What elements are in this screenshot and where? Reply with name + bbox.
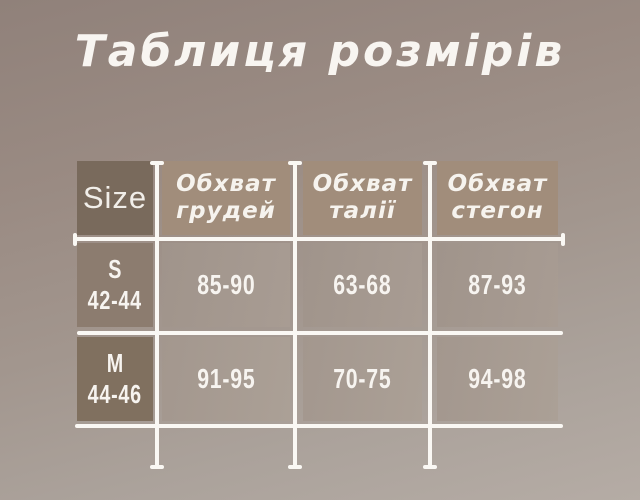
grid-hline-2 [77,331,563,335]
grid-vline-1 [155,161,159,469]
row-m-size: M [106,348,123,379]
grid-vline-2-bottom-cap [288,465,302,469]
row-m-hips-value: 94-98 [468,363,526,395]
row-m-chest-value: 91-95 [197,363,255,395]
header-size-label: Size [83,180,147,216]
grid-vline-2-top-cap [288,161,302,165]
row-m-waist-value: 70-75 [333,363,391,395]
row-m-size-cell: M 44-46 [77,337,153,421]
header-waist-line1: Обхват [313,171,413,198]
size-chart-image: Таблиця розмірів Size Обхват грудей Обхв… [0,0,640,500]
grid-vline-1-bottom-cap [150,465,164,469]
header-hips: Обхват стегон [437,161,558,235]
row-m-hips-cell: 94-98 [437,337,558,421]
page-title: Таблиця розмірів [0,26,640,77]
grid-hline-1-right-cap [561,233,565,246]
header-chest: Обхват грудей [162,161,290,235]
grid-hline-3 [75,424,563,428]
row-s-size-range: 42-44 [88,285,142,316]
row-s-hips-cell: 87-93 [437,243,558,327]
row-m-size-range: 44-46 [88,379,142,410]
row-m-chest-cell: 91-95 [162,337,290,421]
row-s-size-cell: S 42-44 [77,243,153,327]
grid-hline-1-left-cap [73,233,77,246]
header-waist: Обхват талії [303,161,422,235]
row-s-waist-cell: 63-68 [303,243,422,327]
row-m-waist-cell: 70-75 [303,337,422,421]
row-s-waist-value: 63-68 [333,269,391,301]
header-chest-line1: Обхват [176,171,276,198]
row-s-size: S [108,254,122,285]
header-waist-line2: талії [329,198,395,225]
grid-vline-3-top-cap [423,161,437,165]
row-s-chest-cell: 85-90 [162,243,290,327]
header-size: Size [77,161,153,235]
grid-vline-3 [428,161,432,469]
grid-vline-2 [293,161,297,469]
grid-vline-3-bottom-cap [423,465,437,469]
grid-hline-1 [73,237,565,241]
row-s-hips-value: 87-93 [468,269,526,301]
header-chest-line2: грудей [176,198,276,225]
header-hips-line1: Обхват [448,171,548,198]
grid-vline-1-top-cap [150,161,164,165]
row-s-chest-value: 85-90 [197,269,255,301]
header-hips-line2: стегон [451,198,543,225]
